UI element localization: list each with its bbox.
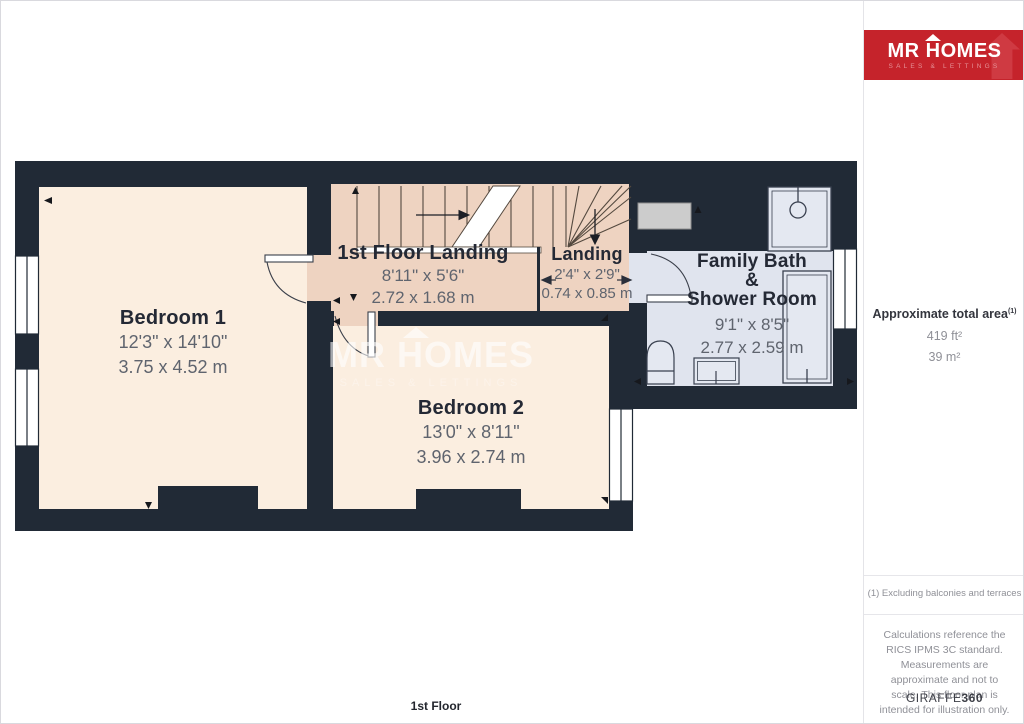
total-area-metric: 39 m² (864, 347, 1024, 368)
room-label-1st-floor-landing: 1st Floor Landing 8'11" x 5'6" 2.72 x 1.… (337, 242, 508, 309)
cupboard (638, 203, 691, 229)
room-dim-metric: 2.72 x 1.68 m (337, 287, 508, 309)
room-dim-metric: 0.74 x 0.85 m (542, 284, 633, 303)
footnote-marker: (1) (1008, 308, 1017, 315)
divider (864, 614, 1024, 615)
room-label-bedroom2: Bedroom 2 13'0" x 8'11" 3.96 x 2.74 m (416, 397, 525, 470)
landing-partition (537, 247, 540, 311)
room-name: Landing (542, 244, 633, 265)
room-dim-imperial: 8'11" x 5'6" (337, 265, 508, 287)
agency-logo-title: MR HOMES (888, 41, 1002, 61)
brand-name: GIRAFFE (906, 691, 962, 705)
sidebar: MR HOMES SALES & LETTINGS Approximate to… (863, 1, 1024, 724)
room-name: 1st Floor Landing (337, 242, 508, 265)
room-label-landing: Landing 2'4" x 2'9" 0.74 x 0.85 m (542, 244, 633, 303)
total-area-imperial: 419 ft² (864, 326, 1024, 347)
room-label-bedroom1: Bedroom 1 12'3" x 14'10" 3.75 x 4.52 m (118, 307, 227, 380)
room-dim-imperial: 12'3" x 14'10" (118, 330, 227, 355)
room-dim-metric: 3.75 x 4.52 m (118, 355, 227, 380)
house-roof-icon (925, 34, 941, 41)
area-footnote: (1) Excluding balconies and terraces (867, 588, 1022, 599)
floor-caption: 1st Floor (411, 699, 462, 713)
total-area-block: Approximate total area(1) 419 ft² 39 m² (864, 307, 1024, 368)
shower-icon (768, 187, 831, 251)
room-label-family-bath-shower-room: Family Bath & Shower Room 9'1" x 8'5" 2.… (687, 252, 817, 359)
room-name: Bedroom 2 (416, 397, 525, 420)
room-dim-metric: 3.96 x 2.74 m (416, 445, 525, 470)
room-name-line1: Family Bath (687, 252, 817, 271)
agency-logo-tagline: SALES & LETTINGS (889, 63, 1001, 70)
room-name-line3: Shower Room (687, 290, 817, 309)
brand-suffix: 360 (961, 691, 983, 705)
room-dim-imperial: 2'4" x 2'9" (542, 265, 633, 284)
giraffe360-brand: GIRAFFE360 (864, 691, 1024, 705)
room-dim-metric: 2.77 x 2.59 m (687, 336, 817, 359)
room-dim-imperial: 9'1" x 8'5" (687, 313, 817, 336)
floorplan-page: MR HOMES SALES & LETTINGS Bedroom 1 12'3… (0, 0, 1024, 724)
toilet-icon (647, 341, 674, 384)
total-area-label: Approximate total area(1) (864, 307, 1024, 321)
agency-logo: MR HOMES SALES & LETTINGS (864, 30, 1024, 80)
sink-icon (694, 358, 739, 384)
room-name-line2: & (687, 271, 817, 290)
room-name: Bedroom 1 (118, 307, 227, 330)
divider (864, 575, 1024, 576)
room-dim-imperial: 13'0" x 8'11" (416, 420, 525, 445)
